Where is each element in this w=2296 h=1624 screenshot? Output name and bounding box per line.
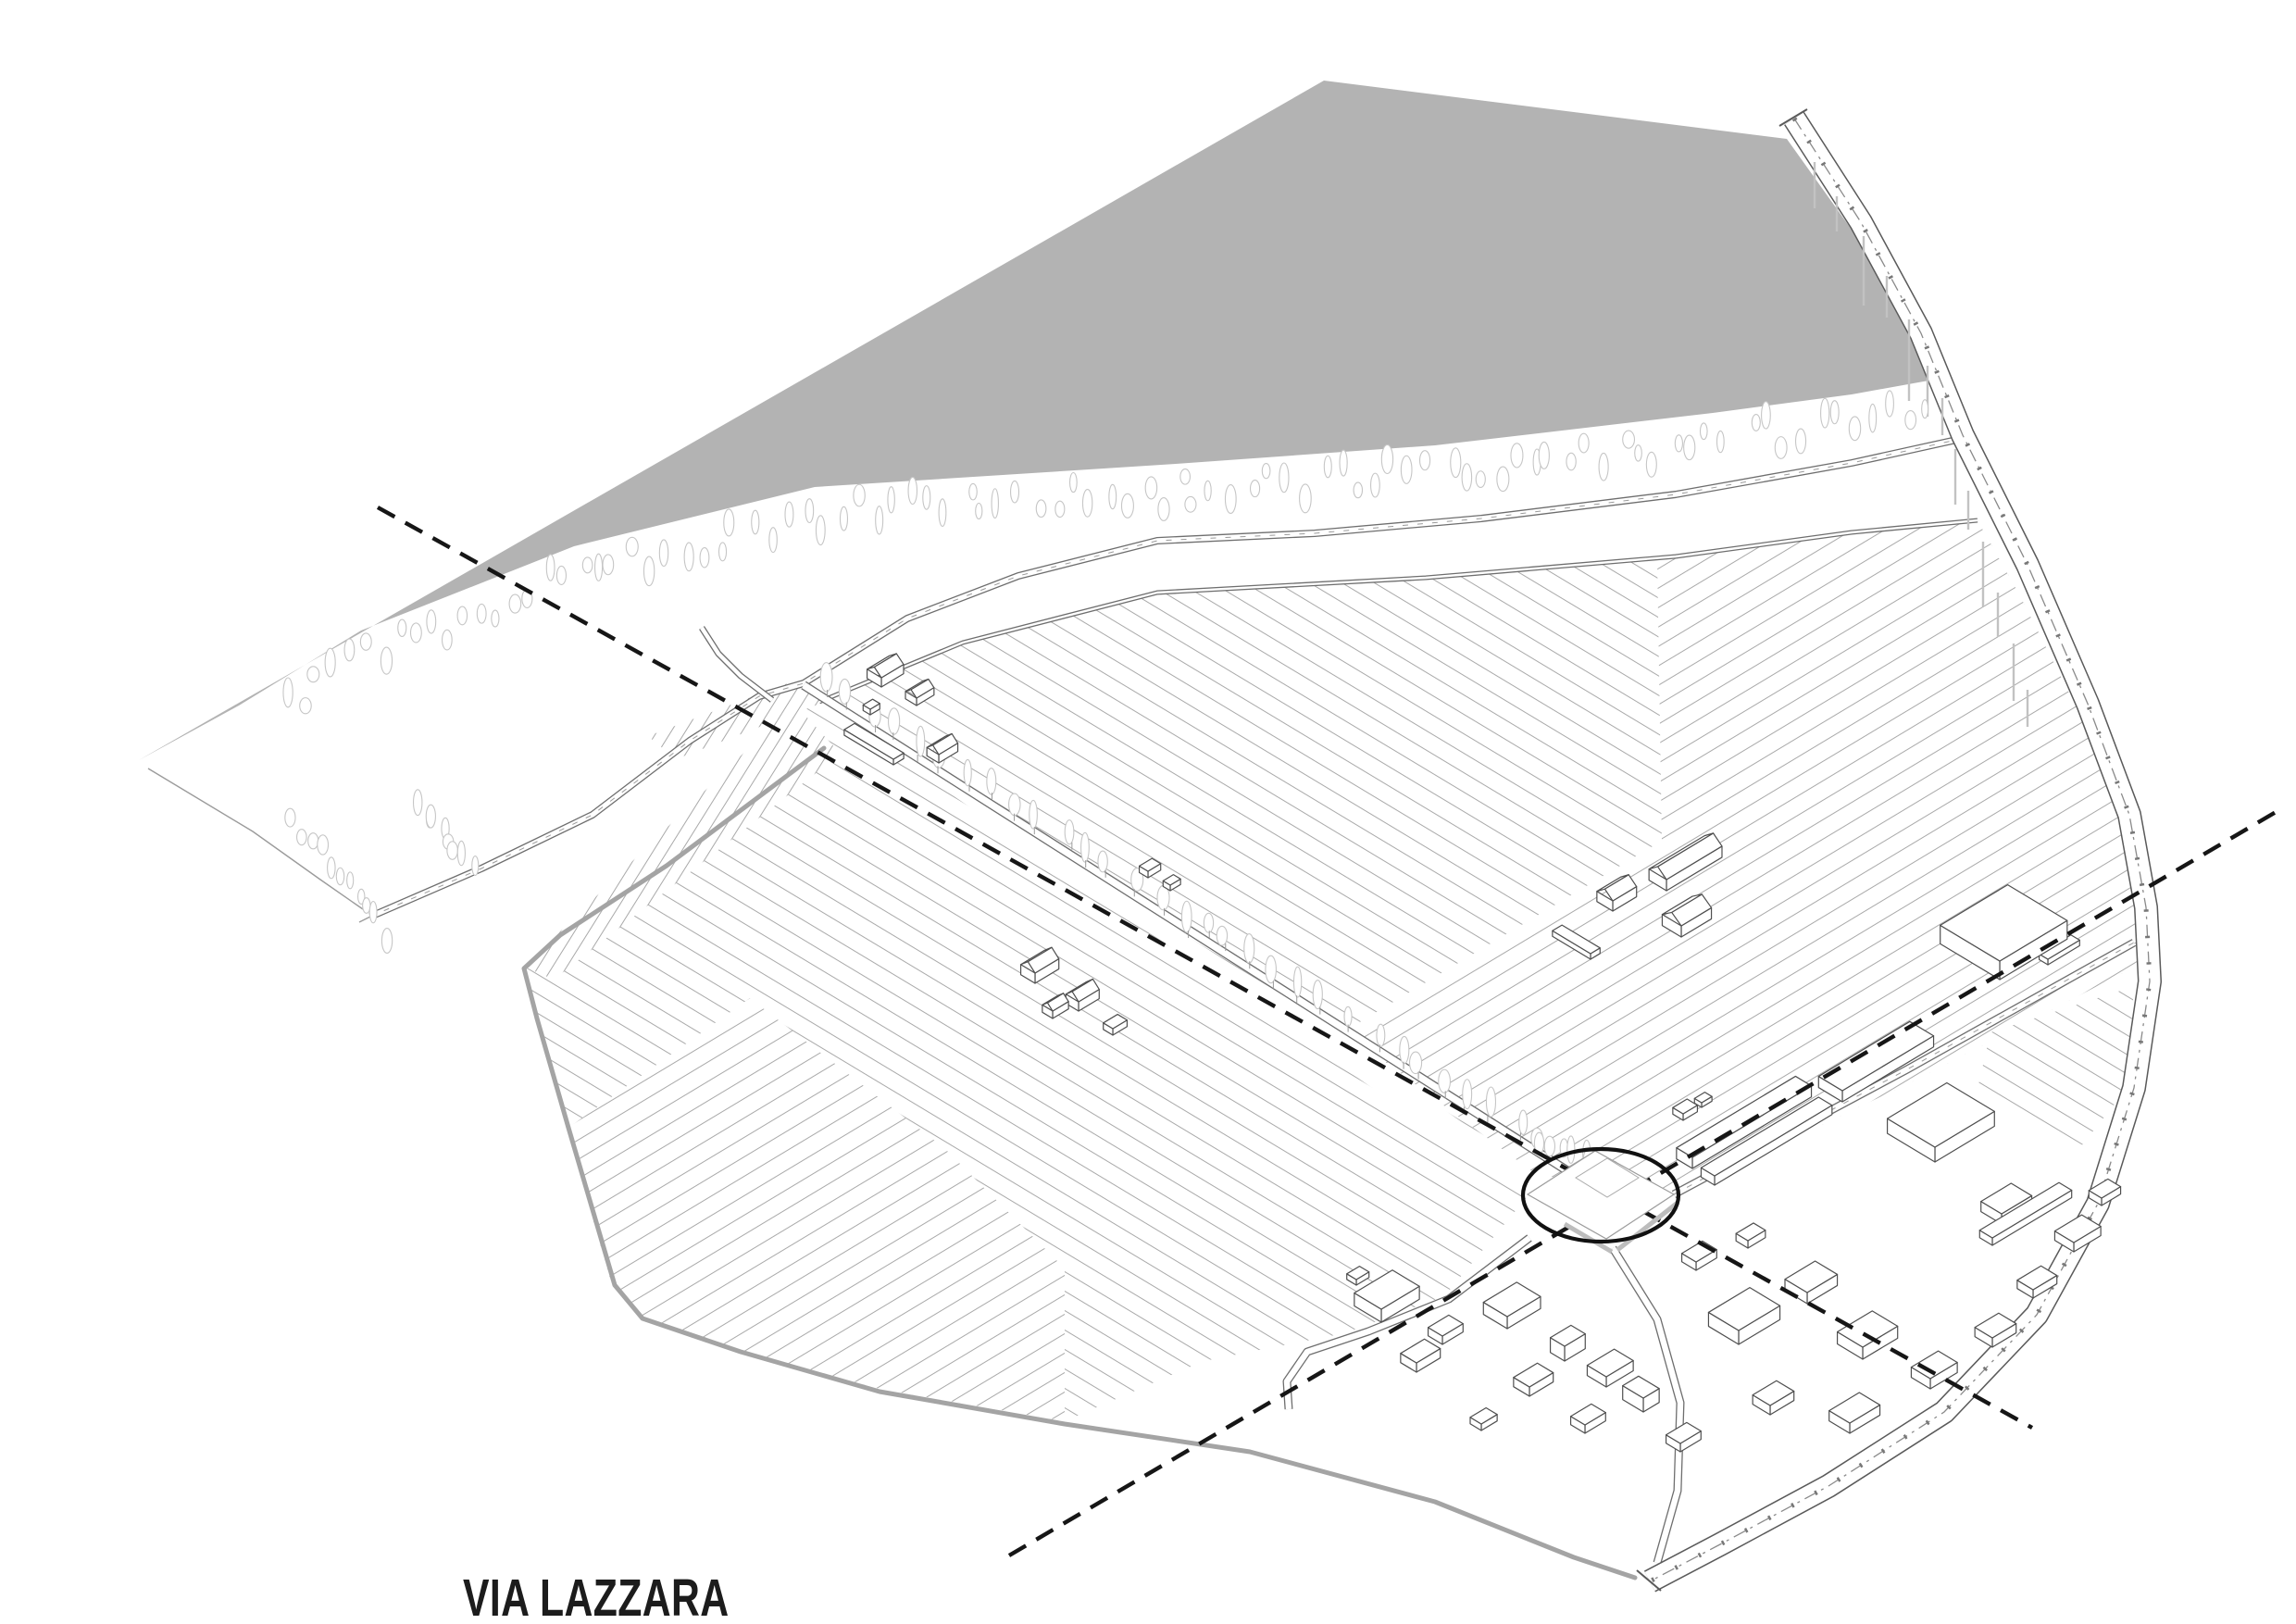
- building-block: [1587, 1349, 1633, 1387]
- building-block: [1571, 1404, 1606, 1433]
- building-block: [1888, 1082, 1995, 1162]
- building-block: [1623, 1376, 1659, 1412]
- building-block: [1708, 1288, 1779, 1344]
- beach-tree-clump-1: [285, 808, 393, 953]
- site-axonometric-drawing: [0, 0, 2296, 1624]
- building-block: [1682, 1241, 1717, 1270]
- building-block: [1470, 1407, 1497, 1430]
- street-label: VIA LAZZARA: [463, 1557, 990, 1624]
- beach-tree-clump-2: [414, 790, 479, 876]
- site-plan-page: VIA LAZZARA CORBOLA,ROVIGO 45° 0'38.98"N…: [0, 0, 2296, 1624]
- field-parcels: [524, 520, 2142, 1421]
- building-block: [1829, 1393, 1880, 1433]
- riverbank-beach-lines: [148, 768, 381, 922]
- building-block: [1551, 1325, 1586, 1361]
- building-block: [1514, 1363, 1554, 1396]
- building-block: [1429, 1315, 1464, 1344]
- building-block: [1785, 1261, 1838, 1304]
- bank-road-spur: [702, 628, 772, 700]
- building-block: [1483, 1282, 1541, 1329]
- building-block: [1753, 1380, 1794, 1415]
- building-block: [1666, 1422, 1702, 1452]
- building-block: [1736, 1223, 1766, 1248]
- building-block: [1401, 1339, 1441, 1372]
- location-caption: VIA LAZZARA CORBOLA,ROVIGO 45° 0'38.98"N…: [463, 1393, 990, 1624]
